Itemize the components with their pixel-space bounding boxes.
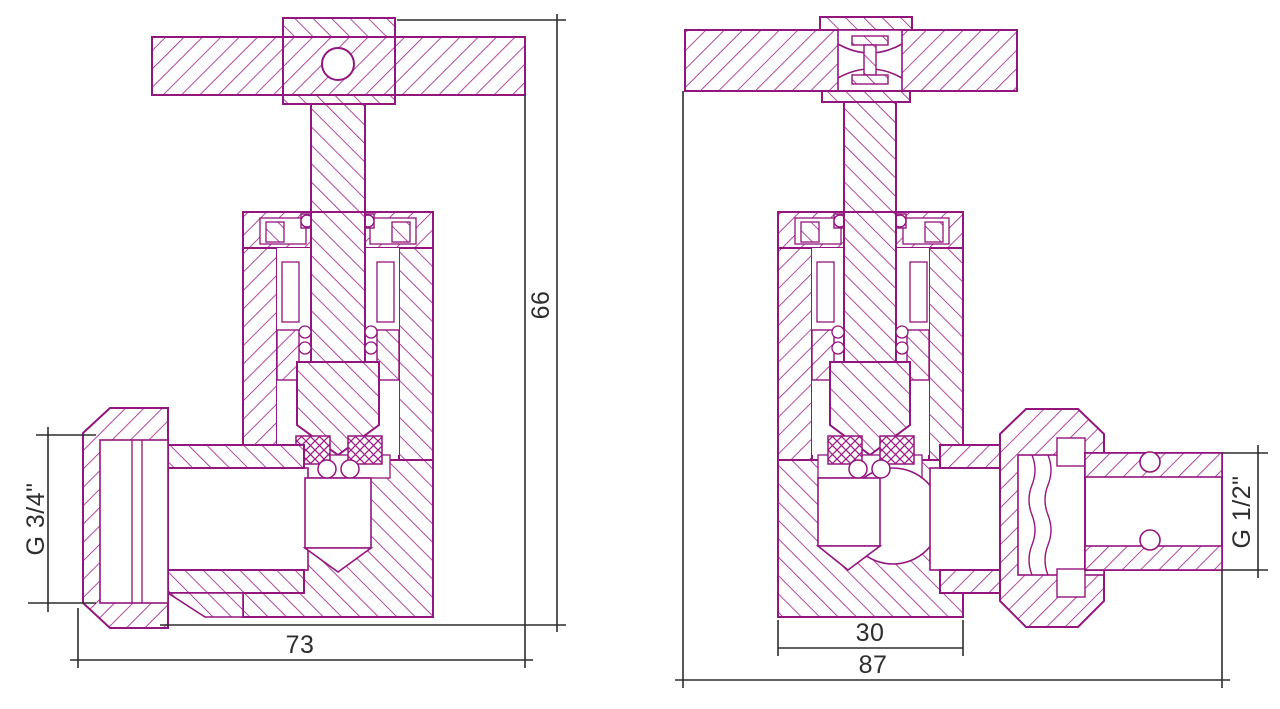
right-nut-tab xyxy=(1057,569,1085,597)
dim-label-left-width: 73 xyxy=(286,631,315,659)
right-spring-ball xyxy=(896,326,908,338)
left-spring-ball xyxy=(299,326,311,338)
left-valve-section xyxy=(83,18,525,628)
dim-label-right-body-width: 30 xyxy=(856,619,885,647)
right-body-wall-right xyxy=(929,248,963,460)
right-outlet-bore xyxy=(930,468,1010,570)
left-spring-ball xyxy=(365,326,377,338)
left-flange-insert xyxy=(266,222,284,242)
right-hub-tbar xyxy=(852,75,888,84)
right-spring-ball xyxy=(896,342,908,354)
right-cavity-step xyxy=(910,262,927,322)
right-nut-tab xyxy=(1057,438,1085,466)
left-outlet-bore xyxy=(160,468,308,570)
left-valve-stem xyxy=(311,104,365,212)
left-tailpipe-bottom xyxy=(168,570,304,593)
left-o-ring xyxy=(318,460,336,478)
right-fitting-o-ring xyxy=(1140,452,1160,472)
dim-label-left-height: 66 xyxy=(527,291,555,320)
left-body-shoulder xyxy=(377,330,399,380)
dim-label-left-thread: G 3/4" xyxy=(22,482,50,555)
left-seat-plug xyxy=(305,478,371,548)
right-neck-top xyxy=(940,445,1008,468)
left-tailpipe-top xyxy=(168,445,304,468)
dim-label-right-thread: G 1/2" xyxy=(1228,475,1256,548)
left-flange-insert xyxy=(392,222,410,242)
left-cavity-step xyxy=(377,262,394,322)
technical-drawing-canvas: G 3/4" 73 66 30 87 G 1/2" xyxy=(0,0,1280,709)
left-handle-top-cap xyxy=(283,18,395,37)
left-body-shoulder xyxy=(277,330,299,380)
left-body-wall-left xyxy=(243,248,277,460)
valve-drawing-svg: G 3/4" 73 66 30 87 G 1/2" xyxy=(0,0,1280,709)
right-valve-section xyxy=(685,17,1222,627)
left-spring-ball xyxy=(365,342,377,354)
right-neck-bottom xyxy=(940,570,1008,593)
left-handle-collar xyxy=(283,95,395,104)
right-handle-top-cap xyxy=(820,17,912,30)
dim-label-right-width: 87 xyxy=(859,651,888,679)
right-hub-web xyxy=(864,45,876,75)
left-o-ring xyxy=(341,460,359,478)
right-handle-collar xyxy=(822,91,910,102)
right-flange-insert xyxy=(801,222,819,242)
right-o-ring xyxy=(849,460,867,478)
right-flange-insert xyxy=(925,222,943,242)
right-hub-tbar xyxy=(852,36,888,45)
right-seat-plug xyxy=(818,478,880,546)
right-spring-ball xyxy=(832,342,844,354)
left-tailpipe-chamfer xyxy=(168,593,243,617)
right-spring-ball xyxy=(832,326,844,338)
right-spindle xyxy=(844,212,896,362)
left-handle-screw-hole xyxy=(322,48,354,80)
left-body-wall-right xyxy=(399,248,433,460)
right-cavity-step xyxy=(817,262,834,322)
right-fitting-o-ring xyxy=(1140,530,1160,550)
right-o-ring xyxy=(872,460,890,478)
right-valve-stem xyxy=(844,102,896,212)
left-spindle xyxy=(311,212,365,362)
left-cavity-step xyxy=(282,262,299,322)
right-packing-seal xyxy=(880,436,914,464)
right-body-wall-left xyxy=(778,248,812,460)
left-spring-ball xyxy=(299,342,311,354)
left-nut-thread-window xyxy=(100,440,168,603)
